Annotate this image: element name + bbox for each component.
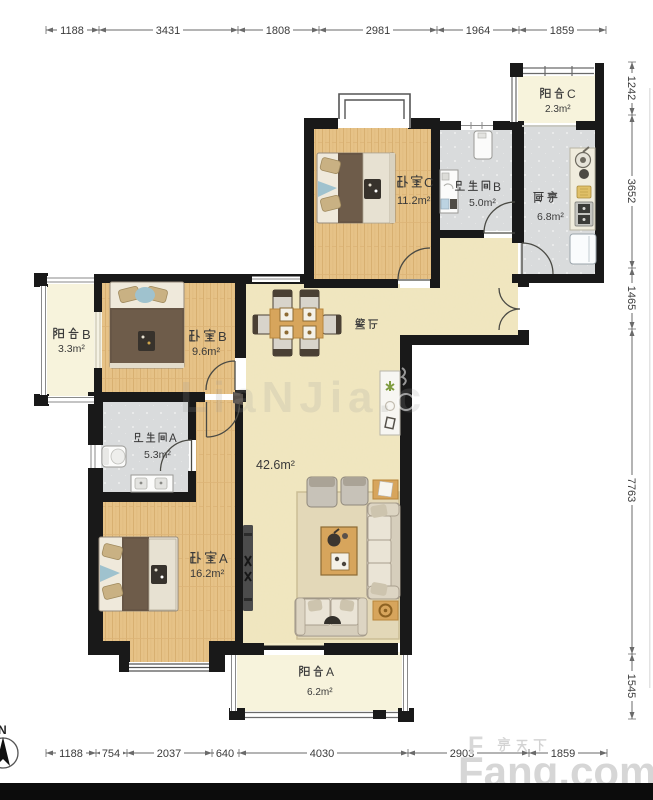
svg-text:3431: 3431 [156,25,180,37]
svg-text:9.6m²: 9.6m² [192,346,220,358]
svg-text:2037: 2037 [157,748,181,760]
svg-text:A: A [169,433,177,445]
svg-text:16.2m²: 16.2m² [190,568,225,580]
svg-text:1545: 1545 [625,674,637,698]
svg-text:C: C [424,175,433,190]
svg-text:5.0m²: 5.0m² [469,197,496,209]
svg-text:A: A [326,665,334,679]
svg-text:6.2m²: 6.2m² [307,687,333,698]
svg-text:7763: 7763 [625,478,637,502]
svg-text:B: B [82,327,91,342]
svg-text:1808: 1808 [266,25,290,37]
svg-text:6.8m²: 6.8m² [537,211,564,223]
svg-text:4030: 4030 [310,748,334,760]
svg-text:754: 754 [102,748,120,760]
svg-text:3.3m²: 3.3m² [58,343,85,355]
svg-text:640: 640 [216,748,234,760]
svg-text:LiaNJia.c: LiaNJia.c [180,373,427,422]
svg-text:N: N [0,723,7,737]
svg-text:2981: 2981 [366,25,390,37]
svg-text:5.3m²: 5.3m² [144,449,171,461]
svg-text:3348: 3348 [0,428,1,452]
svg-text:1242: 1242 [625,76,637,100]
svg-text:B: B [493,180,501,194]
svg-text:3785: 3785 [0,323,1,347]
svg-text:A: A [219,551,228,566]
svg-text:2.3m²: 2.3m² [545,104,571,115]
svg-text:1465: 1465 [625,286,637,310]
svg-text:1188: 1188 [59,748,83,760]
svg-text:C: C [567,87,576,101]
svg-text:3652: 3652 [625,179,637,203]
svg-text:42.6m²: 42.6m² [256,458,295,472]
svg-text:1213: 1213 [0,88,1,112]
svg-text:3592: 3592 [0,553,1,577]
svg-text:B: B [218,329,227,344]
svg-text:1964: 1964 [466,25,490,37]
svg-text:1859: 1859 [550,25,574,37]
svg-text:1188: 1188 [60,25,84,37]
svg-text:3752: 3752 [0,183,1,207]
svg-text:11.2m²: 11.2m² [397,195,431,207]
svg-text:1545: 1545 [0,648,1,672]
